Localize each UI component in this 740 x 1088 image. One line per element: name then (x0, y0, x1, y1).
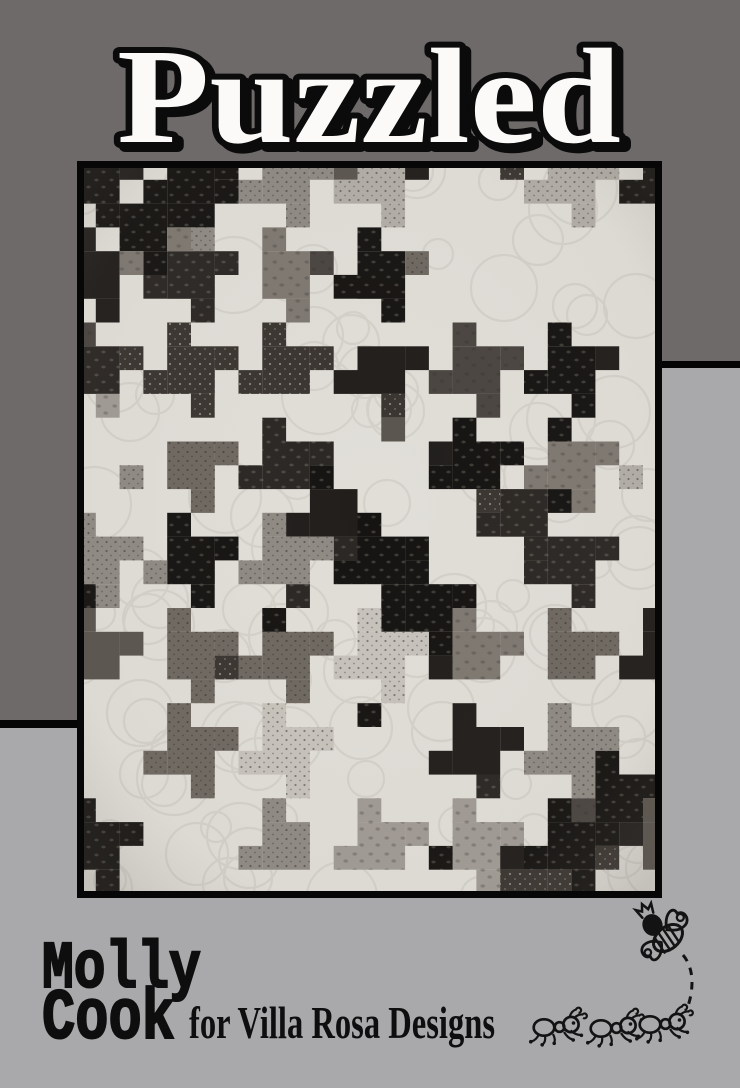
svg-text:Puzzled: Puzzled (117, 22, 621, 172)
svg-text:for Villa Rosa Designs: for Villa Rosa Designs (189, 997, 495, 1048)
svg-text:Cook: Cook (42, 980, 175, 1060)
